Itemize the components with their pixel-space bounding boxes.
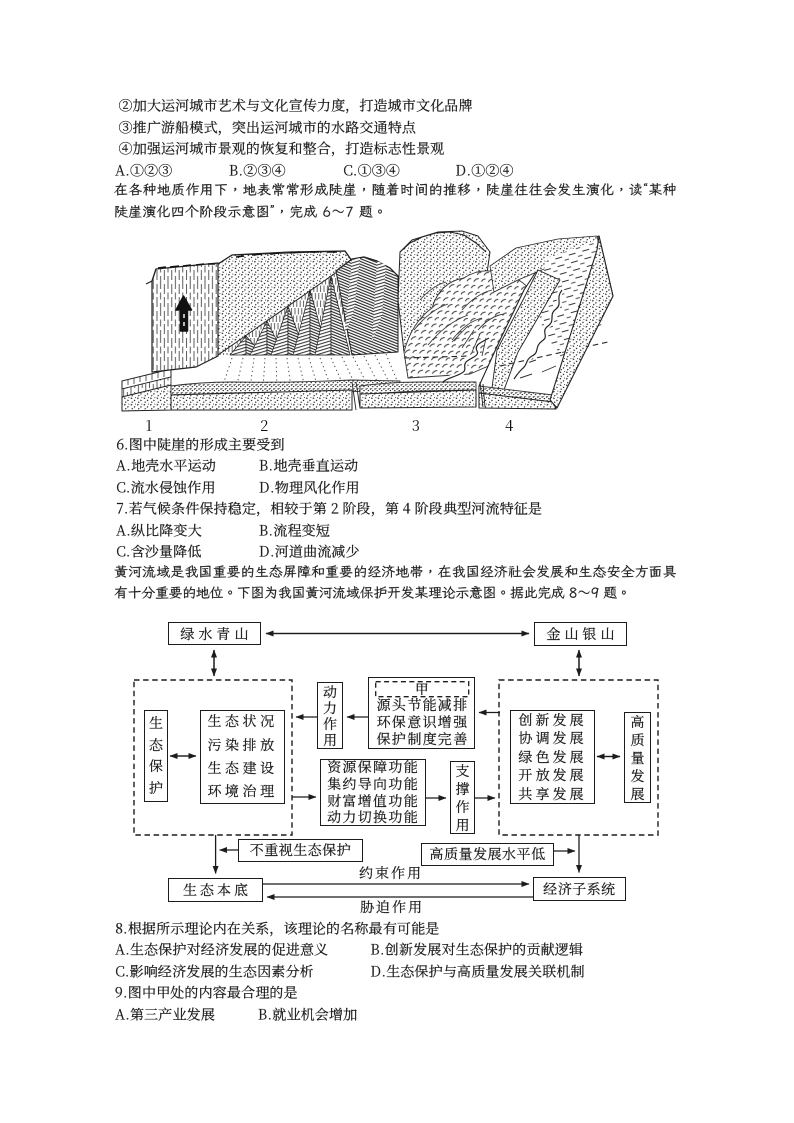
svg-text:4: 4	[505, 415, 513, 436]
svg-text:3: 3	[412, 415, 420, 436]
svg-text:1: 1	[145, 415, 152, 436]
svg-text:2: 2	[260, 415, 268, 436]
